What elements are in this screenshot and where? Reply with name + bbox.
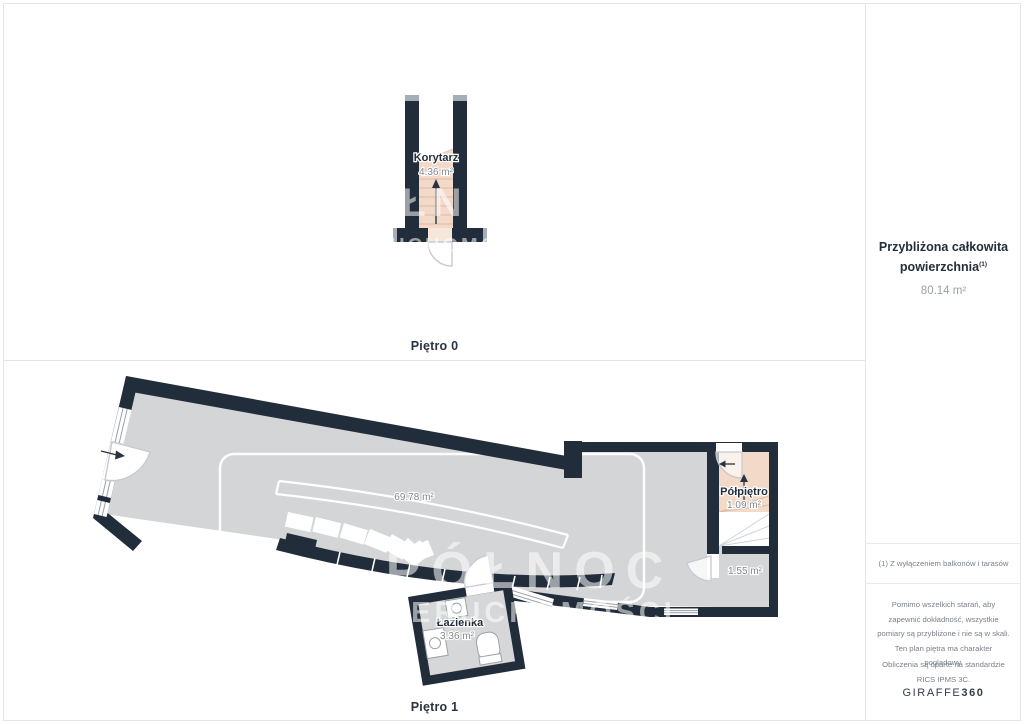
brand-suffix: 360: [961, 687, 984, 699]
total-area-value: 80.14 m²: [866, 285, 1021, 297]
floor0-title: Piętro 0: [4, 339, 865, 353]
room-area-small: 1.55 m²: [728, 566, 763, 577]
sidebar-rule: [866, 583, 1021, 584]
giraffe360-logo: GIRAFFE360: [866, 687, 1021, 699]
room-label-polpietro: Półpiętro: [720, 486, 768, 498]
floor1-plan: 69.78 m² Półpiętro 1.09 m² 1.55 m² Łazie…: [60, 370, 800, 710]
floors-divider: [4, 360, 865, 361]
info-sidebar: Przybliżona całkowita powierzchnia(1) 80…: [866, 3, 1021, 721]
watermark-text: PÓŁNOC: [385, 179, 490, 225]
sidebar-rule: [866, 543, 1021, 544]
room-area-polpietro: 1.09 m²: [727, 500, 762, 511]
watermark-text: NIERUCHOMOŚCI: [374, 595, 676, 629]
total-area-label-line2: powierzchnia(1): [866, 256, 1021, 276]
watermark-text: PÓŁNOC: [386, 542, 674, 600]
main-room-area: 69.78 m²: [394, 492, 434, 503]
footnote-marker: (1): [979, 261, 987, 268]
room-area-korytarz: 4.36 m²: [419, 167, 454, 178]
footnote-text: (1) Z wyłączeniem balkonów i tarasów: [866, 559, 1021, 568]
room-label-korytarz: Korytarz: [414, 152, 459, 164]
total-area-block: Przybliżona całkowita powierzchnia(1) 80…: [866, 239, 1021, 297]
brand-name: GIRAFFE: [902, 687, 961, 699]
interior-wall: [722, 546, 769, 554]
floor0-plan: Korytarz 4.36 m² PÓŁNOC NIERUCHOMOŚCI: [385, 85, 490, 285]
watermark-text: NIERUCHOMOŚCI: [385, 233, 490, 257]
floor1-title: Piętro 1: [4, 700, 865, 714]
room-area-lazienka: 3.36 m²: [440, 631, 475, 642]
door-gap: [716, 443, 742, 452]
total-area-label-line1: Przybliżona całkowita: [866, 239, 1021, 256]
standard-note: Obliczenia są oparte na standardzie RICS…: [866, 658, 1021, 687]
floorplan-page: Korytarz 4.36 m² PÓŁNOC NIERUCHOMOŚCI Pi…: [0, 0, 1024, 724]
